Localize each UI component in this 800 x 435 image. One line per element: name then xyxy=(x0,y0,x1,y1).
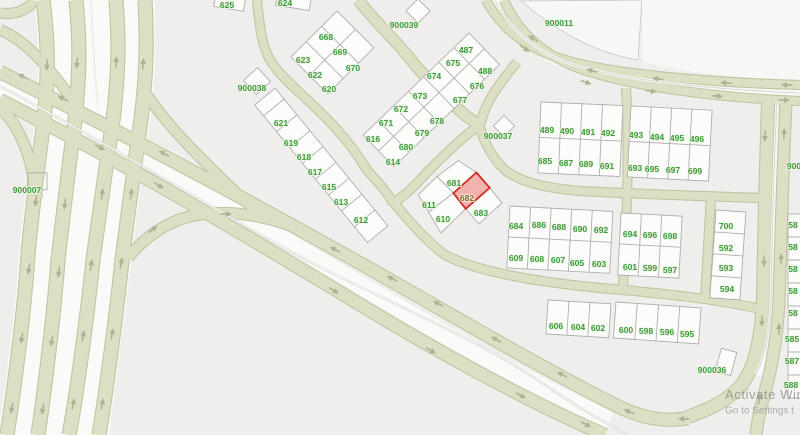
svg-text:595: 595 xyxy=(680,329,695,339)
svg-text:598: 598 xyxy=(639,326,654,336)
svg-text:592: 592 xyxy=(719,243,734,253)
svg-text:597: 597 xyxy=(663,265,678,275)
svg-text:58: 58 xyxy=(788,286,798,296)
svg-text:685: 685 xyxy=(538,156,553,166)
svg-text:611: 611 xyxy=(422,200,436,210)
svg-text:605: 605 xyxy=(570,258,585,268)
svg-text:600: 600 xyxy=(619,325,634,335)
svg-text:489: 489 xyxy=(540,125,555,135)
svg-text:676: 676 xyxy=(470,81,485,91)
svg-text:670: 670 xyxy=(346,63,361,73)
svg-text:668: 668 xyxy=(319,32,334,42)
svg-text:610: 610 xyxy=(436,214,451,224)
svg-text:607: 607 xyxy=(551,255,566,265)
svg-text:601: 601 xyxy=(623,262,638,272)
svg-text:684: 684 xyxy=(509,221,524,231)
svg-text:621: 621 xyxy=(274,118,289,128)
svg-text:900: 900 xyxy=(787,161,800,171)
svg-text:691: 691 xyxy=(600,161,615,171)
svg-text:496: 496 xyxy=(690,134,705,144)
svg-text:677: 677 xyxy=(453,95,468,105)
svg-text:596: 596 xyxy=(660,327,675,337)
svg-text:900036: 900036 xyxy=(698,365,727,375)
svg-text:673: 673 xyxy=(413,91,428,101)
svg-text:674: 674 xyxy=(427,71,442,81)
svg-text:900039: 900039 xyxy=(390,20,419,30)
svg-text:488: 488 xyxy=(478,66,493,76)
svg-text:900038: 900038 xyxy=(238,83,267,93)
svg-text:622: 622 xyxy=(308,70,323,80)
svg-text:625: 625 xyxy=(220,0,235,10)
svg-text:619: 619 xyxy=(284,138,299,148)
svg-text:675: 675 xyxy=(446,58,461,68)
svg-text:678: 678 xyxy=(430,116,445,126)
svg-text:900007: 900007 xyxy=(13,185,42,195)
svg-text:603: 603 xyxy=(592,259,607,269)
svg-text:608: 608 xyxy=(530,254,545,264)
svg-text:585: 585 xyxy=(785,334,800,344)
svg-text:491: 491 xyxy=(581,127,596,137)
svg-text:683: 683 xyxy=(474,208,489,218)
svg-text:604: 604 xyxy=(571,322,586,332)
svg-text:599: 599 xyxy=(643,263,658,273)
svg-text:594: 594 xyxy=(720,284,735,294)
svg-text:613: 613 xyxy=(334,197,349,207)
svg-text:602: 602 xyxy=(591,323,606,333)
svg-text:606: 606 xyxy=(549,321,564,331)
svg-text:618: 618 xyxy=(297,152,312,162)
svg-text:Go to Settings t: Go to Settings t xyxy=(725,406,794,417)
svg-text:682: 682 xyxy=(460,193,475,203)
svg-text:694: 694 xyxy=(623,229,638,239)
svg-text:699: 699 xyxy=(688,166,703,176)
svg-text:693: 693 xyxy=(628,163,643,173)
svg-text:624: 624 xyxy=(278,0,293,8)
svg-text:Activate Win: Activate Win xyxy=(725,387,800,402)
svg-text:698: 698 xyxy=(663,231,678,241)
svg-text:617: 617 xyxy=(308,167,323,177)
svg-text:58: 58 xyxy=(788,264,798,274)
svg-text:669: 669 xyxy=(333,47,348,57)
svg-text:490: 490 xyxy=(560,126,575,136)
svg-text:687: 687 xyxy=(559,158,574,168)
svg-text:692: 692 xyxy=(594,225,609,235)
svg-text:900011: 900011 xyxy=(545,18,573,28)
svg-text:697: 697 xyxy=(666,165,681,175)
svg-text:680: 680 xyxy=(399,142,414,152)
svg-text:58: 58 xyxy=(788,220,798,230)
svg-text:679: 679 xyxy=(415,128,430,138)
svg-text:587: 587 xyxy=(785,356,800,366)
svg-text:681: 681 xyxy=(447,178,462,188)
svg-text:495: 495 xyxy=(670,133,685,143)
svg-text:614: 614 xyxy=(386,157,401,167)
svg-text:616: 616 xyxy=(366,134,381,144)
svg-text:623: 623 xyxy=(296,55,311,65)
svg-text:609: 609 xyxy=(509,253,524,263)
svg-text:689: 689 xyxy=(579,159,594,169)
svg-text:487: 487 xyxy=(459,45,474,55)
svg-text:494: 494 xyxy=(650,132,665,142)
svg-text:493: 493 xyxy=(629,130,644,140)
svg-text:690: 690 xyxy=(573,224,588,234)
svg-text:695: 695 xyxy=(645,164,660,174)
svg-text:620: 620 xyxy=(322,84,337,94)
svg-text:612: 612 xyxy=(354,215,369,225)
svg-text:700: 700 xyxy=(719,221,734,231)
svg-text:900037: 900037 xyxy=(484,131,513,141)
svg-text:58: 58 xyxy=(788,308,798,318)
svg-text:58: 58 xyxy=(788,242,798,252)
svg-text:615: 615 xyxy=(322,182,337,192)
svg-text:492: 492 xyxy=(601,128,616,138)
svg-text:688: 688 xyxy=(552,222,567,232)
svg-text:672: 672 xyxy=(394,104,409,114)
svg-text:593: 593 xyxy=(719,263,734,273)
svg-text:671: 671 xyxy=(379,118,394,128)
svg-text:686: 686 xyxy=(532,220,547,230)
svg-text:696: 696 xyxy=(643,230,658,240)
